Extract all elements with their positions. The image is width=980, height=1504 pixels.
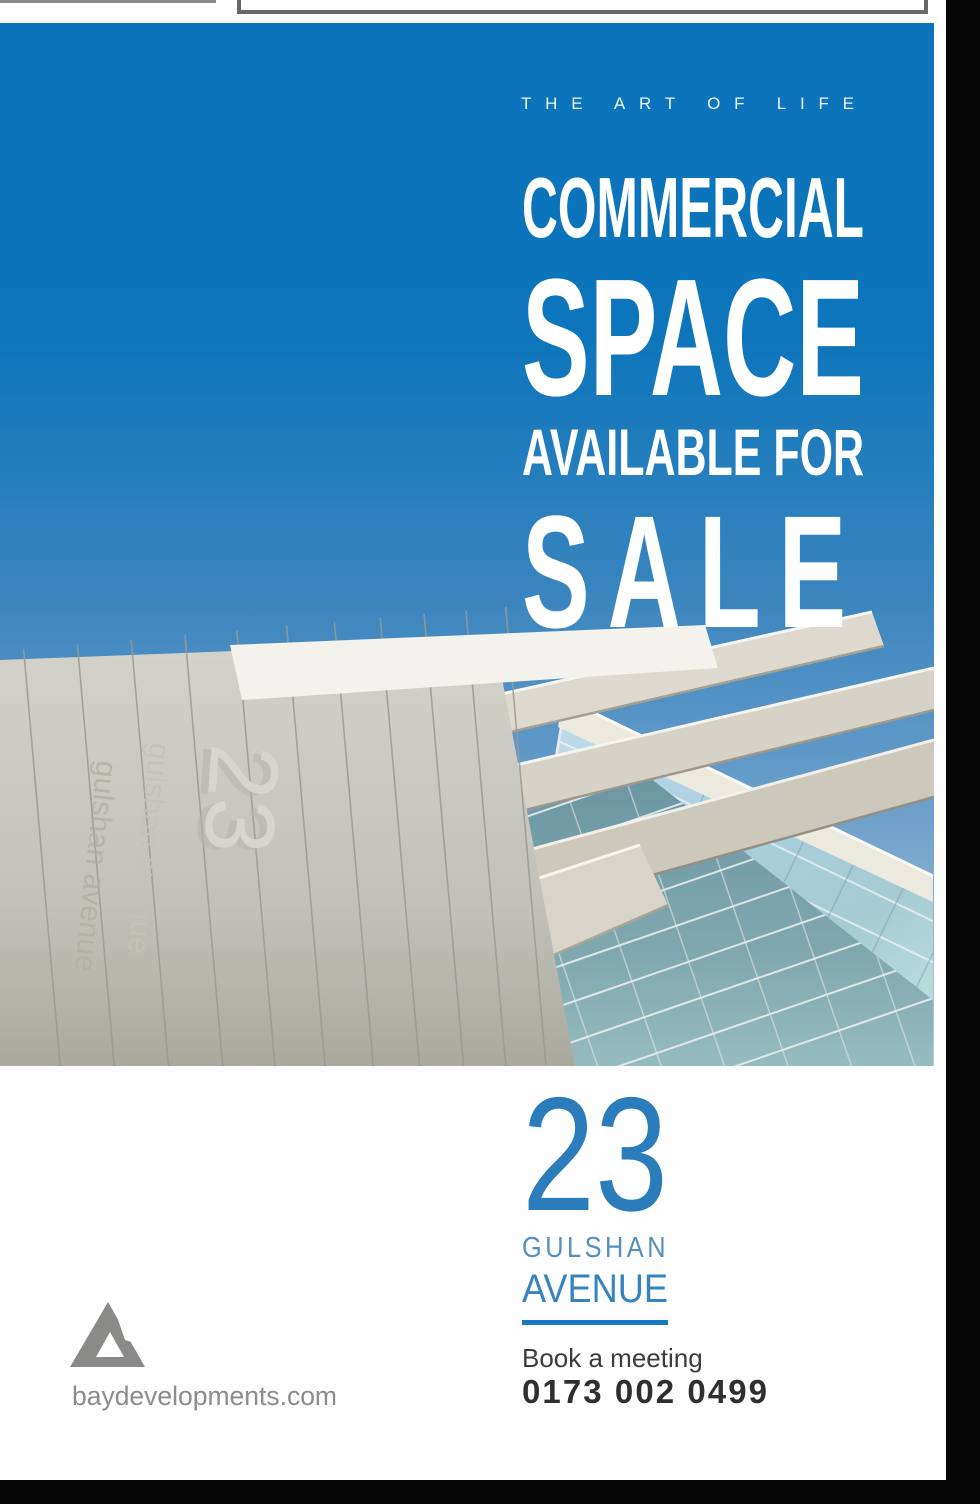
poster-artwork: 23 23 gulshan avenue gulshan avenue THE …: [0, 0, 946, 1480]
address-street: GULSHAN: [522, 1232, 669, 1264]
headline-line4: SALE: [522, 482, 864, 661]
bay-triangle-logo-icon: [70, 1302, 145, 1367]
brand-website: baydevelopments.com: [72, 1381, 337, 1411]
address-block: 23 GULSHAN AVENUE: [522, 1064, 669, 1325]
address-number: 23: [522, 1064, 668, 1245]
brand-block: baydevelopments.com: [70, 1302, 337, 1411]
headline-line1: COMMERCIAL: [522, 161, 864, 256]
contact-block: Book a meeting 0173 002 0499: [522, 1343, 767, 1410]
building-sign-number: 23: [183, 741, 300, 857]
headline-block: THE ART OF LIFE COMMERCIAL SPACE AVAILAB…: [521, 94, 864, 661]
headline-line2: SPACE: [522, 245, 864, 431]
gallery-frame-remnant-left: [0, 0, 216, 3]
phone-number: 0173 002 0499: [522, 1373, 767, 1410]
gallery-frame-remnant-right: [237, 0, 928, 14]
address-rule: [522, 1320, 668, 1325]
poster-page: 23 23 gulshan avenue gulshan avenue THE …: [0, 0, 946, 1480]
tagline-text: THE ART OF LIFE: [521, 94, 864, 113]
book-meeting-label: Book a meeting: [522, 1343, 703, 1373]
address-street2: AVENUE: [522, 1267, 668, 1311]
headline-line3: AVAILABLE FOR: [522, 415, 864, 489]
app-canvas: 23 23 gulshan avenue gulshan avenue THE …: [0, 0, 980, 1504]
building-photo: 23 23 gulshan avenue gulshan avenue: [0, 584, 946, 1448]
